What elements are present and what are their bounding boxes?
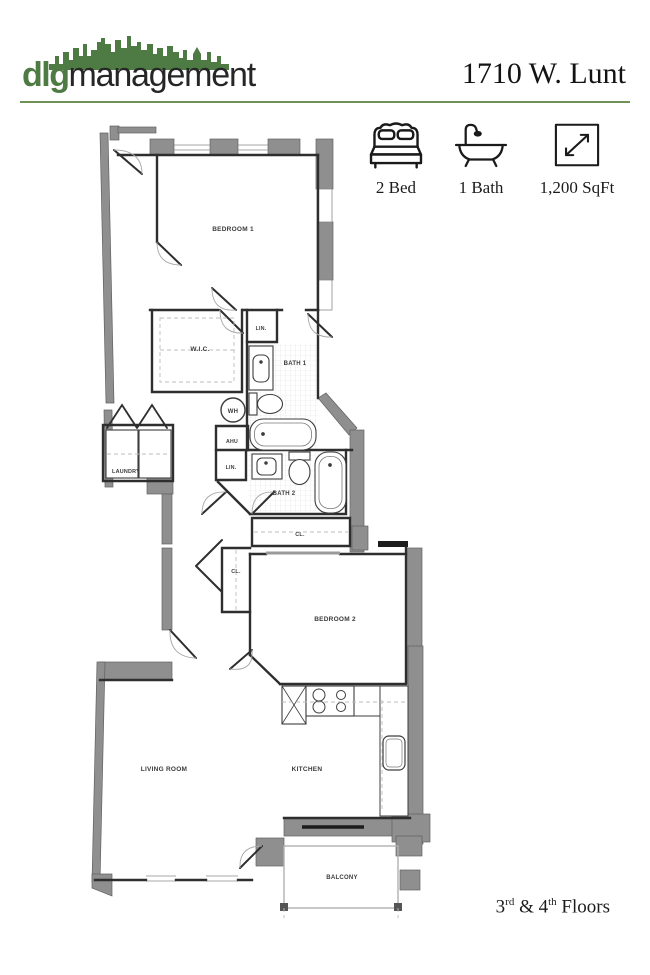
label-ahu: AHU [226, 439, 238, 445]
floors-suffix: Floors [557, 896, 610, 917]
feature-bath: 1 Bath [442, 117, 520, 198]
bath2-toilet-tank [289, 452, 310, 460]
bath1-toilet-tank [249, 393, 257, 415]
room-label-closet-2: CL. [231, 569, 241, 575]
logo-text: dlgmanagement [22, 58, 255, 92]
window-header [378, 541, 408, 547]
room-label-wic: W.I.C. [190, 346, 209, 353]
logo: dlgmanagement [22, 34, 262, 102]
room-label-bedroom-2: BEDROOM 2 [314, 616, 356, 623]
logo-rest-text: management [68, 56, 254, 94]
floorplan-drawing: BEDROOM 1 W.I.C. LIN. BATH 1 WH AHU LAUN… [85, 115, 433, 927]
label-water-heater: WH [228, 409, 239, 415]
bath2-sink [257, 458, 276, 475]
dimensions-icon [550, 117, 604, 173]
floors-separator: & [514, 896, 538, 917]
floorplan-sheet: dlgmanagement 1710 W. Lunt 2 Bed [0, 0, 650, 975]
room-label-bedroom-1: BEDROOM 1 [212, 226, 254, 233]
bath2-tub [315, 452, 346, 513]
bath1-sink [253, 355, 269, 382]
floor-number-1: 3 [496, 896, 506, 917]
bath2-toilet [289, 460, 310, 485]
room-label-closet-1: CL. [295, 532, 305, 538]
header-divider [20, 101, 630, 103]
room-label-kitchen: KITCHEN [292, 766, 323, 773]
room-label-bath-1: BATH 1 [284, 361, 307, 367]
page-title: 1710 W. Lunt [462, 57, 626, 91]
feature-bath-label: 1 Bath [442, 178, 520, 198]
room-label-linen-1: LIN. [256, 326, 267, 332]
floor-ordinal-2: th [548, 896, 557, 908]
room-label-laundry: LAUNDRY [112, 469, 140, 475]
room-label-balcony: BALCONY [326, 875, 357, 881]
floors-note: 3rd & 4th Floors [496, 896, 610, 918]
floor-ordinal-1: rd [505, 896, 514, 908]
feature-sqft-label: 1,200 SqFt [524, 178, 630, 198]
floor-number-2: 4 [539, 896, 549, 917]
kitchen-stove [306, 686, 354, 716]
bath1-toilet [258, 395, 283, 414]
logo-bold-text: dlg [22, 56, 68, 94]
room-label-linen-2: LIN. [226, 465, 237, 471]
bathtub-icon [452, 117, 510, 173]
room-label-bath-2: BATH 2 [273, 491, 296, 497]
room-label-living-room: LIVING ROOM [141, 766, 187, 773]
feature-sqft: 1,200 SqFt [524, 117, 630, 198]
